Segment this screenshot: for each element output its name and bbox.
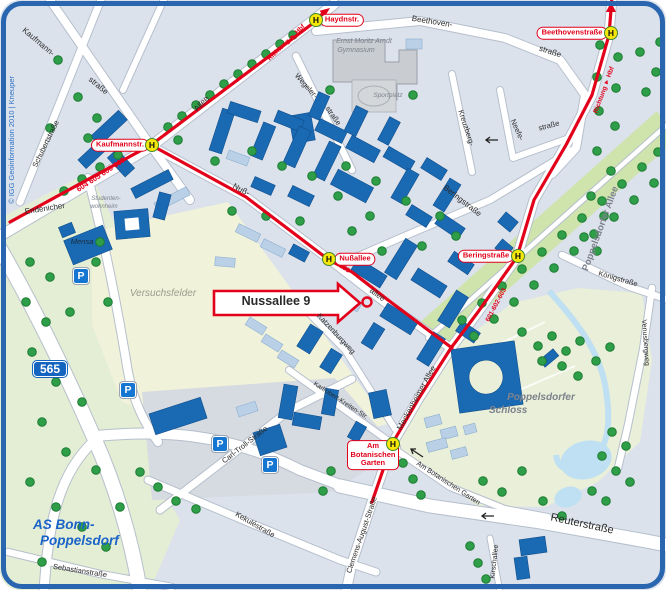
- stop-beethovenstrasse: Beethovenstraße: [537, 27, 608, 40]
- stop-haydnstr: Haydnstr.: [320, 14, 364, 27]
- callout-arrow: [214, 284, 360, 322]
- stop-kaufmannstr: Kaufmannstr.: [91, 139, 149, 152]
- h-stop-icon-beethovenstrasse: H: [604, 26, 618, 40]
- h-stop-icon-haydnstr: H: [309, 13, 323, 27]
- parking-icon-1: P: [73, 268, 89, 284]
- parking-icon-3: P: [212, 436, 228, 452]
- h-stop-icon-kaufmannstr: H: [145, 138, 159, 152]
- parking-icon-2: P: [120, 382, 136, 398]
- stop-abg-line3: Garten: [350, 459, 396, 468]
- h-stop-icon-am-botanischen-garten: H: [386, 437, 400, 451]
- stop-nussallee: Nußallee: [334, 253, 375, 266]
- motorway-565-shield: 565: [33, 361, 67, 377]
- parking-icon-4: P: [262, 457, 278, 473]
- map-canvas[interactable]: © IGG Geoinformation 2010 | Kneuper Kauf…: [0, 0, 666, 590]
- map-area: © IGG Geoinformation 2010 | Kneuper Kauf…: [0, 0, 666, 590]
- stop-beringstrasse: Beringstraße: [458, 250, 514, 263]
- h-stop-icon-nussallee: H: [322, 252, 336, 266]
- h-stop-icon-beringstrasse: H: [511, 249, 525, 263]
- map-graphics: [0, 0, 666, 590]
